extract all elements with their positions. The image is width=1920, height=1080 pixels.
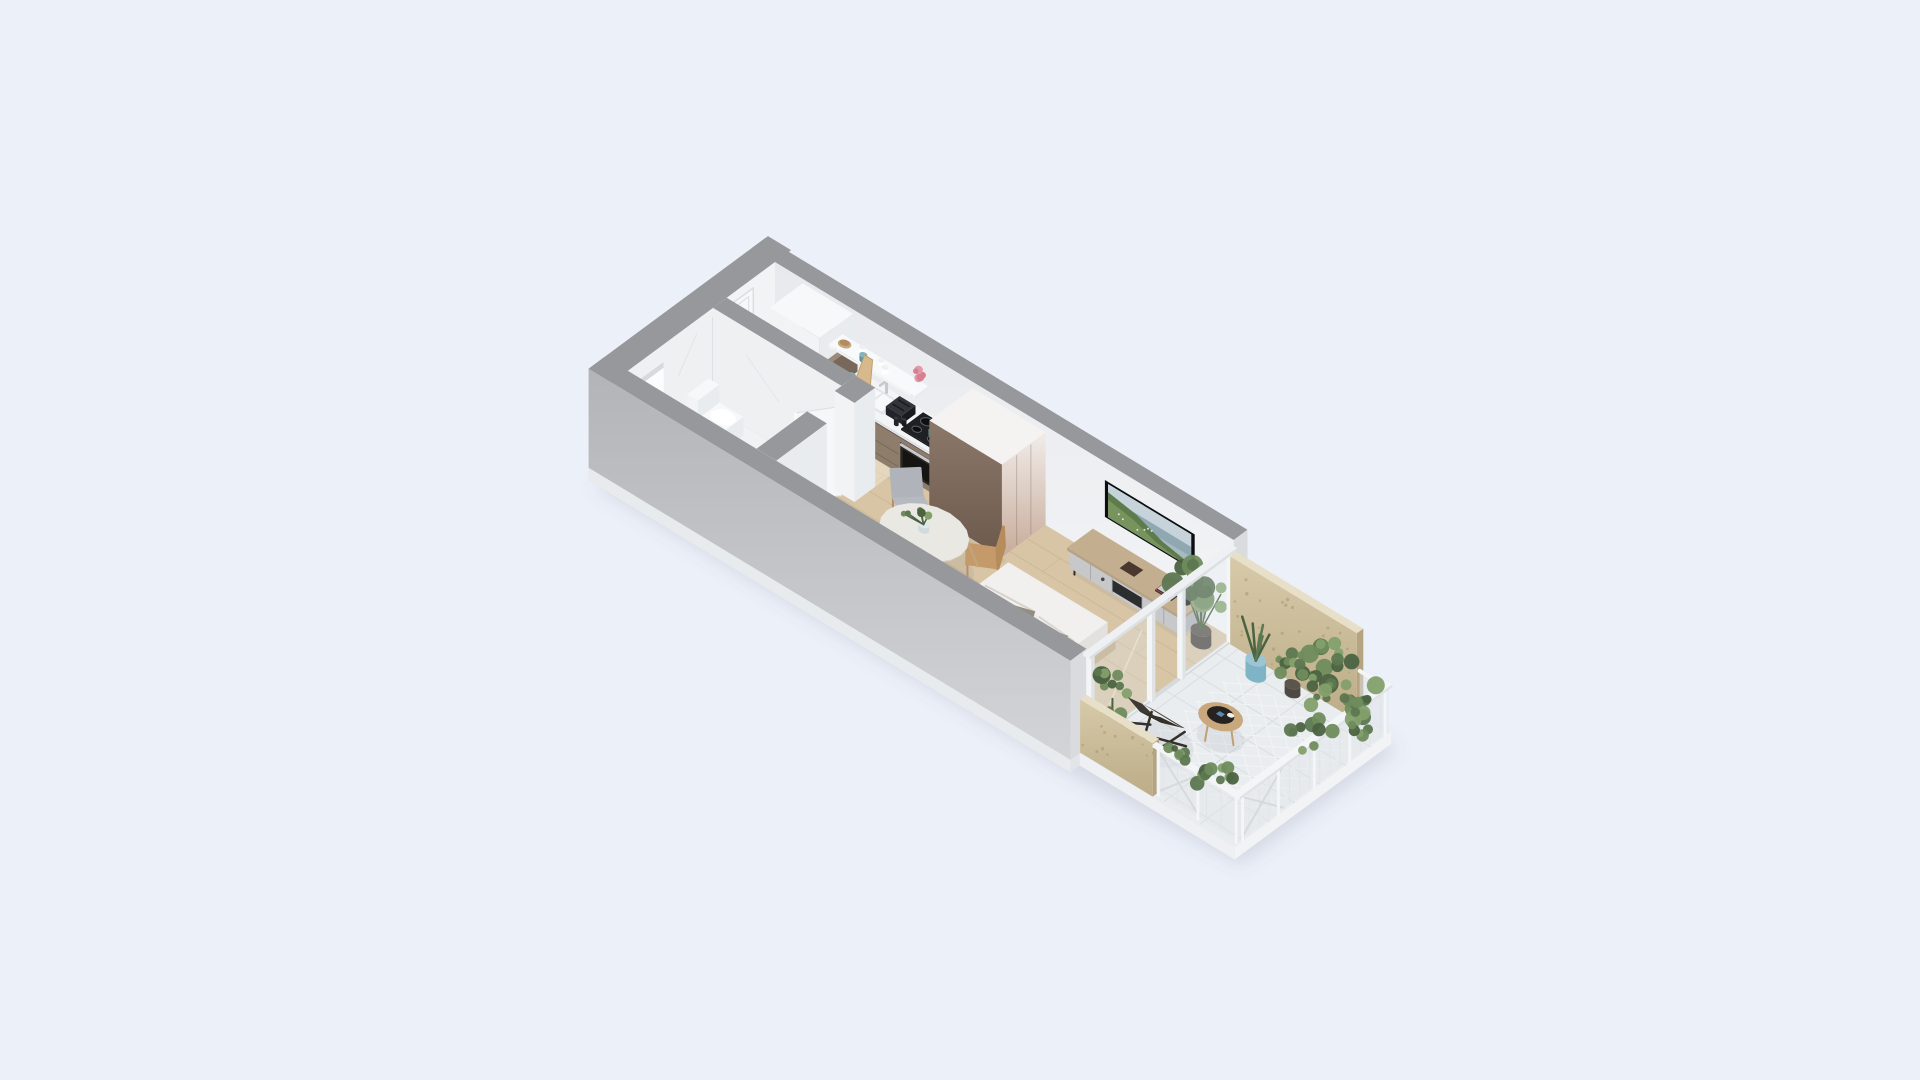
isometric-floor-plan xyxy=(0,0,1920,1080)
floor-plan-canvas xyxy=(0,0,1920,1080)
